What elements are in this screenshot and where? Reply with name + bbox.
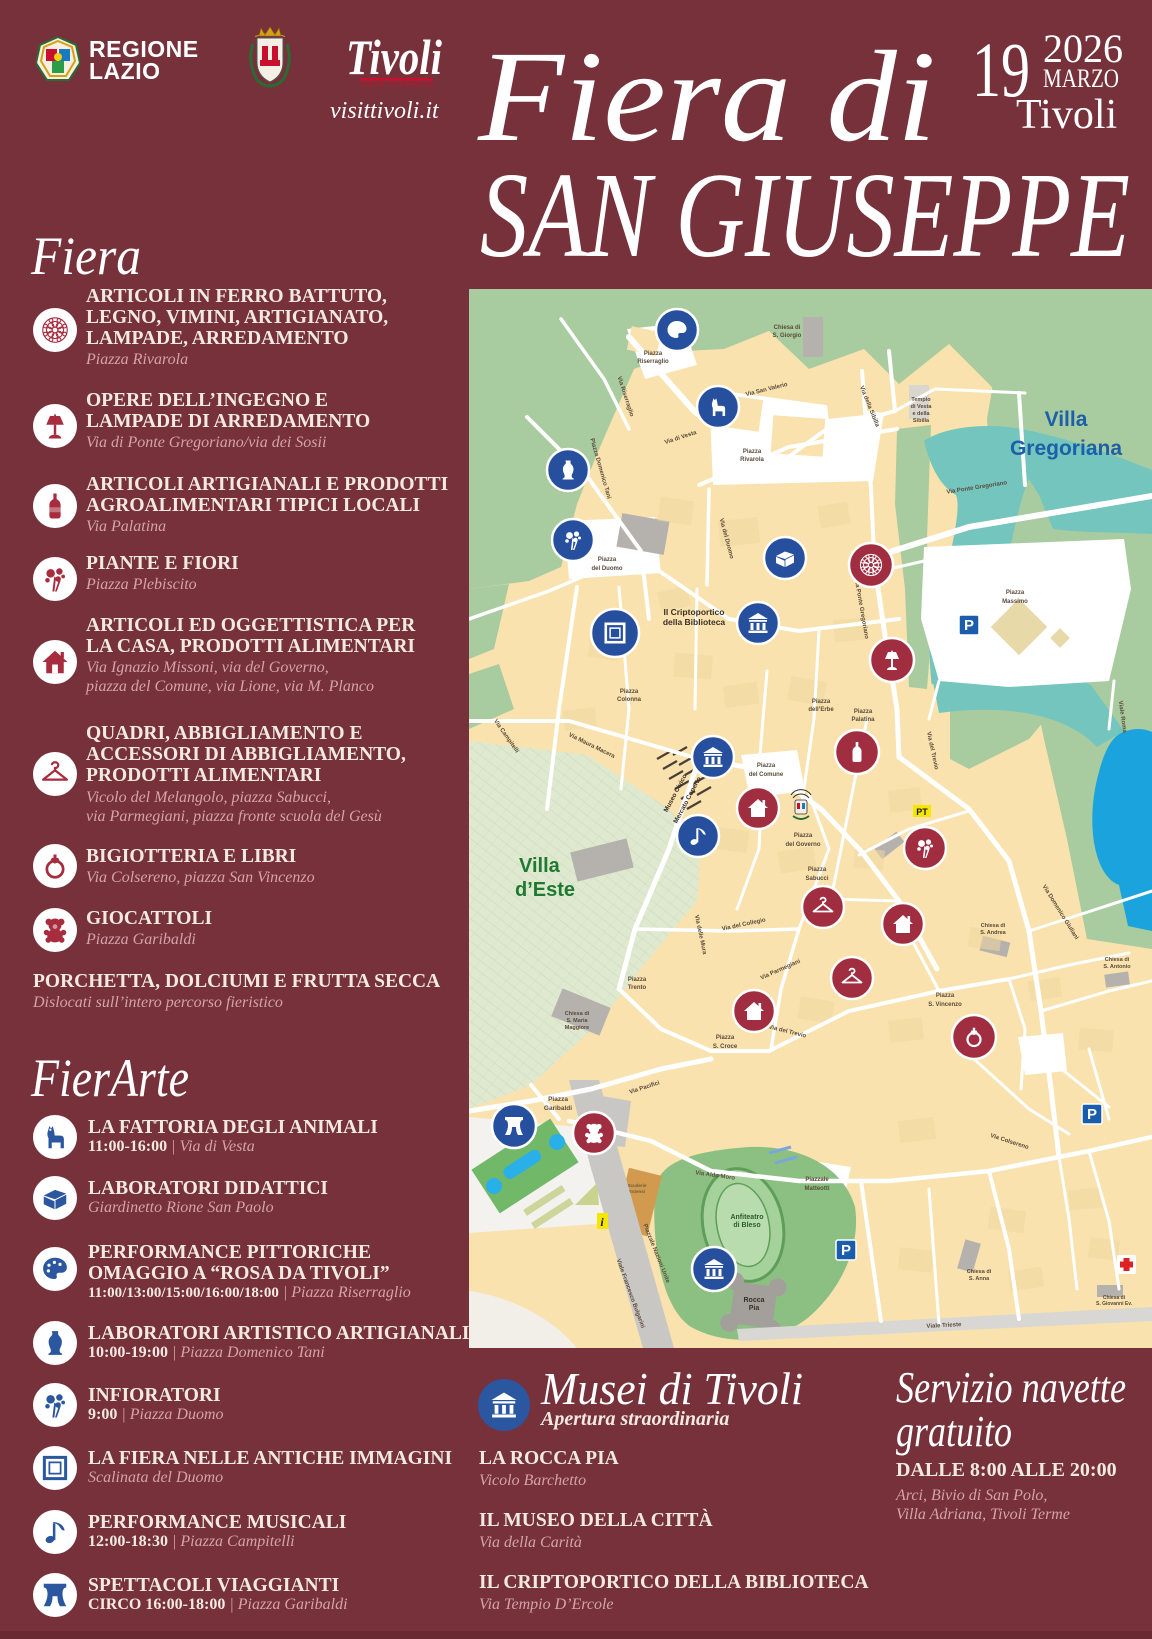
svg-text:Pia: Pia bbox=[749, 1305, 760, 1312]
svg-text:Chiesa di: Chiesa di bbox=[967, 1269, 992, 1275]
svg-text:Rivarola: Rivarola bbox=[740, 457, 764, 463]
svg-text:Servizio navette: Servizio navette bbox=[896, 1363, 1126, 1412]
svg-text:SAN GIUSEPPE: SAN GIUSEPPE bbox=[480, 148, 1130, 280]
svg-text:TIBUR SUPERBUM: TIBUR SUPERBUM bbox=[360, 83, 435, 89]
svg-text:gratuito: gratuito bbox=[896, 1407, 1012, 1456]
svg-text:S. Anna: S. Anna bbox=[969, 1276, 990, 1282]
svg-text:Riserraglio: Riserraglio bbox=[637, 359, 669, 365]
svg-text:S. Vincenzo: S. Vincenzo bbox=[928, 1002, 962, 1008]
svg-text:S. Giovanni Ev.: S. Giovanni Ev. bbox=[1096, 1301, 1133, 1307]
svg-text:Piazza: Piazza bbox=[628, 977, 647, 983]
svg-text:Piazza: Piazza bbox=[620, 689, 639, 695]
svg-text:S. Giorgio: S. Giorgio bbox=[773, 333, 802, 339]
svg-text:Massimo: Massimo bbox=[1002, 599, 1028, 605]
svg-text:Piazza: Piazza bbox=[854, 709, 873, 715]
svg-text:Piazza: Piazza bbox=[743, 449, 762, 455]
svg-text:Chiesa di: Chiesa di bbox=[565, 1011, 590, 1017]
svg-text:P: P bbox=[1087, 1106, 1097, 1123]
svg-text:Maggiore: Maggiore bbox=[565, 1025, 589, 1031]
svg-text:Tempio: Tempio bbox=[911, 397, 931, 403]
svg-text:Sibilla: Sibilla bbox=[913, 418, 930, 424]
svg-text:Piazza: Piazza bbox=[598, 557, 617, 563]
svg-text:Villa: Villa bbox=[1045, 408, 1088, 431]
svg-text:Garibaldi: Garibaldi bbox=[544, 1105, 572, 1112]
svg-text:Tivoli: Tivoli bbox=[346, 29, 442, 85]
svg-text:Matteotti: Matteotti bbox=[805, 1186, 830, 1192]
svg-text:della Biblioteca: della Biblioteca bbox=[663, 617, 726, 627]
svg-text:P: P bbox=[964, 617, 974, 634]
svg-text:Scuderie: Scuderie bbox=[627, 1183, 647, 1188]
svg-text:di Bleso: di Bleso bbox=[733, 1222, 760, 1229]
svg-text:Piazza: Piazza bbox=[812, 699, 831, 705]
svg-text:Chiesa di: Chiesa di bbox=[981, 923, 1006, 929]
svg-text:S. Maria: S. Maria bbox=[566, 1018, 588, 1024]
svg-text:Sabucci: Sabucci bbox=[805, 876, 828, 882]
svg-text:Fiera: Fiera bbox=[30, 226, 141, 284]
svg-text:Colonna: Colonna bbox=[617, 697, 642, 703]
svg-text:S. Croce: S. Croce bbox=[713, 1044, 738, 1050]
svg-text:Chiesa di: Chiesa di bbox=[1105, 957, 1130, 963]
svg-text:Chiesa di: Chiesa di bbox=[774, 325, 801, 331]
svg-text:dell’Erbe: dell’Erbe bbox=[808, 707, 834, 713]
svg-text:del Comune: del Comune bbox=[749, 772, 784, 778]
svg-text:Piazza: Piazza bbox=[716, 1035, 735, 1041]
svg-text:Piazzale: Piazzale bbox=[805, 1177, 829, 1183]
svg-text:FierArte: FierArte bbox=[30, 1048, 189, 1102]
svg-text:Piazza: Piazza bbox=[1006, 590, 1025, 596]
svg-text:Trento: Trento bbox=[628, 985, 647, 991]
svg-text:Piazza: Piazza bbox=[644, 351, 663, 357]
svg-text:Villa: Villa bbox=[519, 855, 561, 877]
svg-text:di Vesta: di Vesta bbox=[911, 404, 933, 410]
svg-text:Musei di Tivoli: Musei di Tivoli bbox=[540, 1363, 803, 1414]
svg-text:Piazza: Piazza bbox=[757, 763, 776, 769]
svg-text:Piazza: Piazza bbox=[794, 833, 813, 839]
svg-text:Estensi: Estensi bbox=[629, 1189, 645, 1194]
svg-text:Piazza: Piazza bbox=[808, 867, 827, 873]
svg-text:e della: e della bbox=[912, 411, 930, 417]
svg-text:Palatina: Palatina bbox=[851, 717, 875, 723]
svg-text:MARZO: MARZO bbox=[1043, 64, 1119, 93]
svg-text:Piazza: Piazza bbox=[548, 1096, 568, 1103]
svg-text:del Duomo: del Duomo bbox=[592, 566, 623, 572]
svg-text:S. Andrea: S. Andrea bbox=[980, 930, 1006, 936]
svg-text:Anfiteatro: Anfiteatro bbox=[730, 1214, 763, 1221]
svg-text:del Governo: del Governo bbox=[785, 842, 820, 848]
svg-text:Il Criptoportico: Il Criptoportico bbox=[664, 607, 725, 617]
svg-text:d’Este: d’Este bbox=[515, 879, 575, 901]
svg-text:P: P bbox=[841, 1242, 851, 1259]
svg-text:Piazza: Piazza bbox=[936, 993, 955, 999]
svg-text:Rocca: Rocca bbox=[743, 1297, 764, 1304]
svg-text:Gregoriana: Gregoriana bbox=[1010, 437, 1122, 460]
svg-text:PT: PT bbox=[916, 807, 928, 817]
svg-text:Tivoli: Tivoli bbox=[1016, 92, 1117, 138]
svg-text:S. Antonio: S. Antonio bbox=[1103, 964, 1131, 970]
